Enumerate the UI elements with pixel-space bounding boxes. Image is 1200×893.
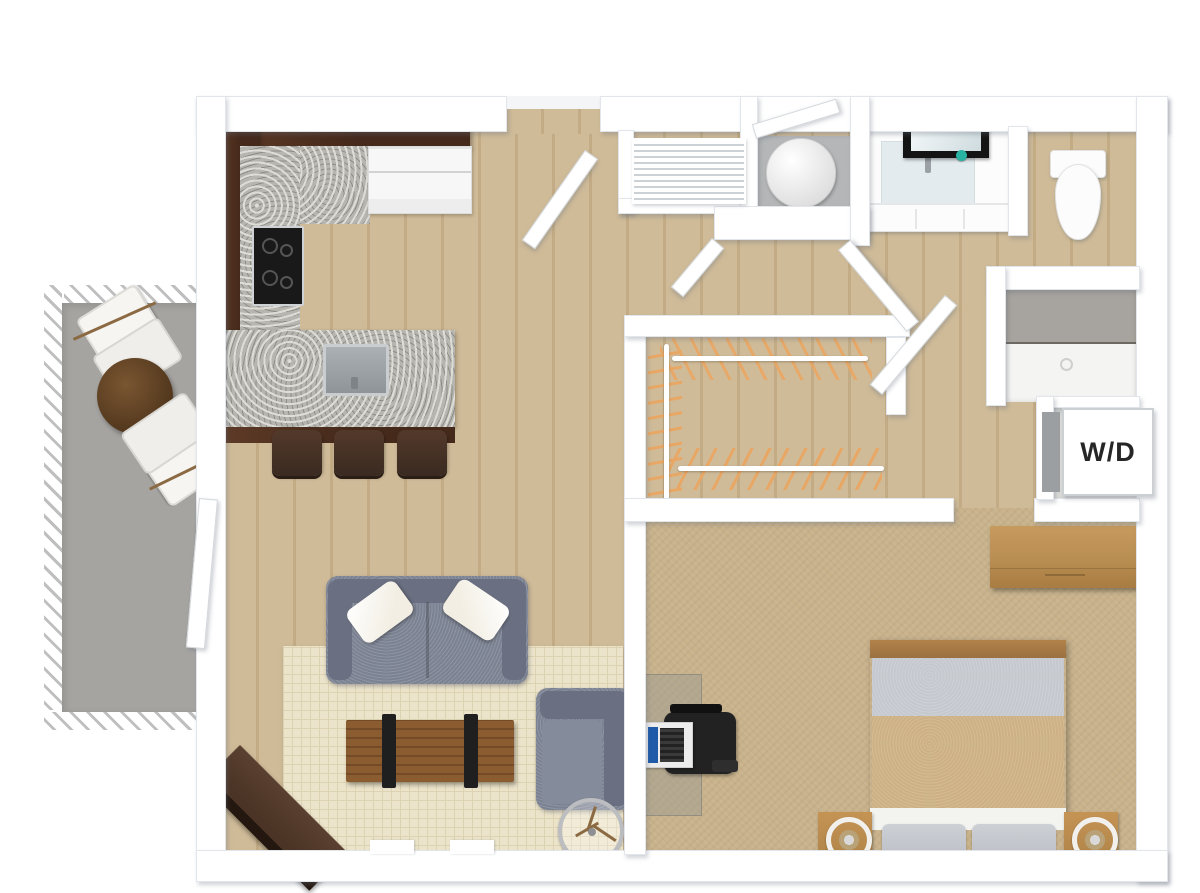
laundry-appliance-side — [1042, 412, 1060, 492]
wall-exterior-top-east — [600, 96, 1168, 132]
entry-threshold — [507, 108, 600, 134]
wall-utility-south — [714, 206, 870, 240]
coffee-table — [346, 720, 514, 782]
kitchen-sink — [323, 344, 389, 396]
bed-blanket — [872, 658, 1064, 716]
window-jamb — [370, 840, 414, 854]
coffee-table-strap — [382, 714, 396, 788]
wall-closet-north — [624, 315, 910, 337]
laptop — [645, 722, 693, 768]
wall-bathroom-west — [850, 96, 870, 246]
wall-bedroom-north-west — [624, 498, 954, 522]
water-heater — [766, 138, 836, 208]
window-jamb — [450, 840, 494, 854]
bed-duvet — [872, 716, 1064, 808]
wall-exterior-bottom — [196, 850, 1168, 882]
bar-stool — [272, 430, 322, 476]
bar-stool — [334, 430, 384, 476]
wall-shower-north — [986, 266, 1140, 290]
wall-bedroom-north-east — [1034, 498, 1140, 522]
wall-exterior-left — [196, 96, 226, 854]
balcony-railing-bottom — [42, 710, 217, 732]
armchair — [536, 688, 632, 810]
cooktop — [252, 226, 304, 306]
bar-stool — [397, 430, 447, 476]
louvered-closet-doors — [632, 138, 746, 204]
vanity-accessory — [956, 150, 967, 161]
closet-rod-top — [672, 356, 868, 361]
refrigerator — [368, 146, 472, 214]
closet-rod-left — [664, 344, 669, 502]
bed — [870, 640, 1066, 858]
closet-rod-bottom — [678, 466, 884, 471]
wall-exterior-top-west — [196, 96, 507, 132]
balcony-railing-left — [42, 283, 64, 732]
floor-plan: W/D — [0, 0, 1200, 893]
wall-living-bedroom — [624, 315, 646, 855]
shower-drain — [1060, 358, 1073, 371]
entry-door-header — [507, 96, 600, 109]
shower-glass-panel — [1006, 288, 1136, 344]
coffee-table-strap — [464, 714, 478, 788]
wall-toilet-nook — [1008, 126, 1028, 236]
washer-dryer-label: W/D — [1080, 437, 1135, 468]
dresser — [990, 526, 1140, 588]
wall-shower-west — [986, 266, 1006, 406]
washer-dryer-unit: W/D — [1062, 408, 1154, 496]
bed-footboard — [870, 640, 1066, 658]
